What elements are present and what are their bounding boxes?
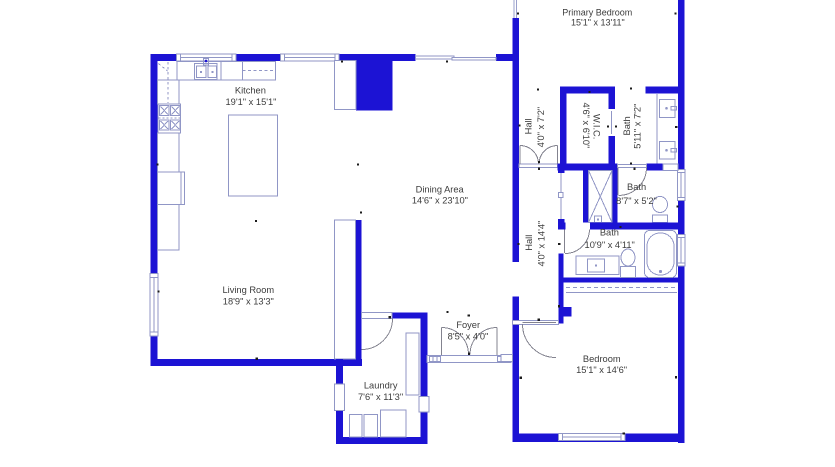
svg-text:15'1" x 14'6": 15'1" x 14'6" [576, 365, 627, 375]
svg-text:Dining Area: Dining Area [416, 184, 465, 194]
svg-text:W.I.C.: W.I.C. [592, 114, 602, 139]
svg-text:18'9" x 13'3": 18'9" x 13'3" [223, 296, 274, 306]
svg-text:5'11" x 7'2": 5'11" x 7'2" [632, 104, 642, 149]
svg-text:19'1" x 15'1": 19'1" x 15'1" [226, 97, 277, 107]
svg-text:4'0" x 7'2": 4'0" x 7'2" [536, 107, 546, 148]
svg-text:7'6" x 11'3": 7'6" x 11'3" [358, 392, 403, 402]
svg-text:14'6" x 23'10": 14'6" x 23'10" [412, 196, 468, 206]
svg-text:10'9" x 4'11": 10'9" x 4'11" [585, 240, 635, 250]
svg-text:4'0" x 14'4": 4'0" x 14'4" [537, 221, 547, 267]
svg-text:Bath: Bath [600, 228, 619, 238]
svg-text:Hall: Hall [523, 118, 533, 134]
svg-text:Living Room: Living Room [222, 285, 274, 295]
svg-text:Laundry: Laundry [364, 380, 398, 390]
svg-text:8'7" x 5'2": 8'7" x 5'2" [616, 196, 657, 206]
svg-text:Foyer: Foyer [456, 320, 480, 330]
svg-text:4'6" x 6'10": 4'6" x 6'10" [581, 102, 591, 148]
svg-text:Kitchen: Kitchen [235, 85, 266, 95]
svg-text:Primary Bedroom: Primary Bedroom [562, 8, 632, 18]
svg-text:Bath: Bath [622, 116, 632, 135]
svg-text:8'5" x 4'0": 8'5" x 4'0" [448, 331, 489, 341]
svg-text:Bedroom: Bedroom [583, 354, 621, 364]
svg-text:Hall: Hall [524, 235, 534, 251]
svg-text:15'1" x 13'11": 15'1" x 13'11" [571, 18, 625, 28]
svg-text:Bath: Bath [627, 182, 646, 192]
